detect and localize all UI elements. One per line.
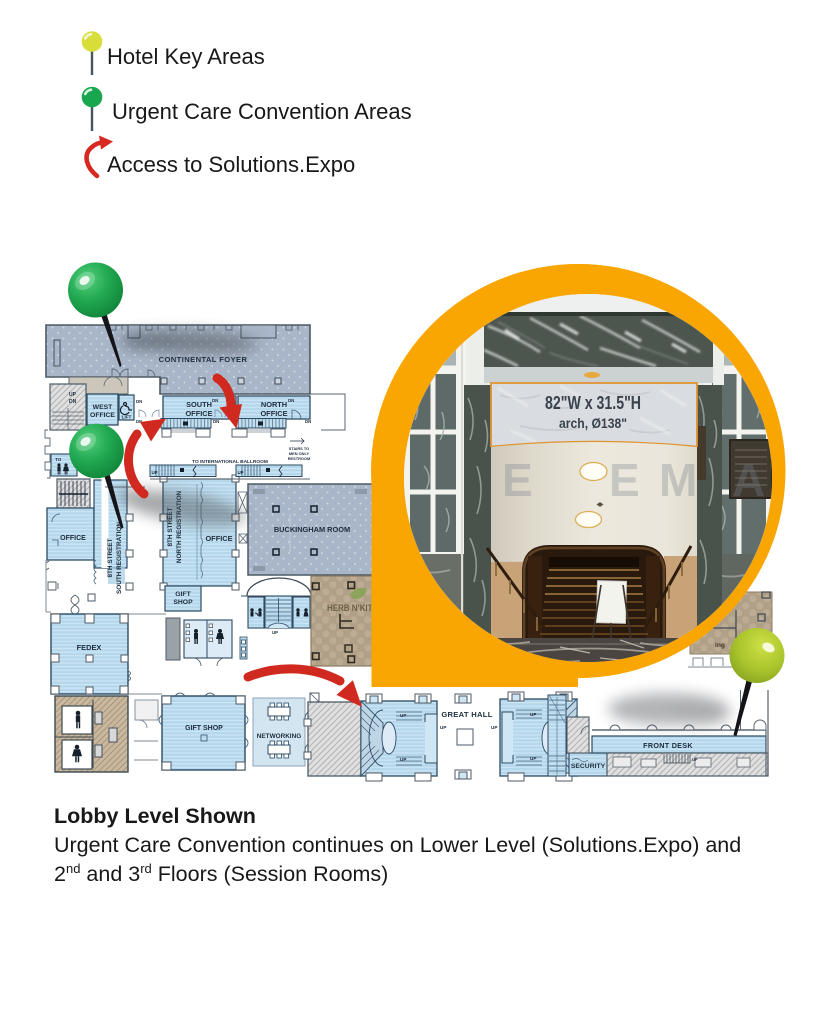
svg-text:UP: UP [440,725,446,730]
svg-text:DN: DN [288,398,294,403]
svg-text:CONTINENTAL FOYER: CONTINENTAL FOYER [159,355,248,364]
svg-text:UP: UP [238,470,244,475]
svg-text:NETWORKING: NETWORKING [257,733,301,740]
svg-text:GREAT HALL: GREAT HALL [441,710,492,719]
svg-text:OFFICE: OFFICE [260,409,287,418]
svg-text:BUCKINGHAM ROOM: BUCKINGHAM ROOM [274,525,350,534]
svg-text:DN: DN [305,419,311,424]
svg-text:8TH STREET: 8TH STREET [107,538,114,577]
svg-text:DN: DN [69,399,77,405]
svg-text:UP: UP [400,713,406,718]
svg-text:UP: UP [530,756,536,761]
svg-text:OFFICE: OFFICE [185,409,212,418]
svg-text:E: E [502,454,533,506]
svg-text:TO INTERNATIONAL BALLROOM: TO INTERNATIONAL BALLROOM [192,459,268,465]
svg-text:ing: ing [715,642,725,649]
svg-text:82"W x 31.5"H: 82"W x 31.5"H [545,393,641,413]
svg-text:UP: UP [69,392,77,398]
svg-text:DN: DN [136,399,142,404]
svg-text:OFFICE: OFFICE [205,534,232,543]
svg-text:A: A [732,454,765,506]
svg-text:arch, Ø138": arch, Ø138" [559,415,627,431]
svg-text:FRONT DESK: FRONT DESK [643,741,693,750]
svg-text:UP: UP [400,757,406,762]
svg-text:M: M [659,454,697,506]
svg-text:Hotel Key Areas: Hotel Key Areas [107,44,265,69]
svg-text:UP: UP [152,470,158,475]
svg-text:Urgent Care Convention continu: Urgent Care Convention continues on Lowe… [54,833,741,857]
svg-text:DN: DN [212,398,218,403]
svg-text:WEST: WEST [93,404,113,411]
svg-text:SECURITY: SECURITY [571,763,606,770]
svg-text:RESTROOM: RESTROOM [288,456,310,461]
svg-text:2nd and 3rd Floors (Session Ro: 2nd and 3rd Floors (Session Rooms) [54,861,388,886]
svg-text:Access to Solutions.Expo: Access to Solutions.Expo [107,152,355,177]
svg-text:UP: UP [272,630,278,635]
svg-text:NORTH: NORTH [261,400,287,409]
svg-text:FEDEX: FEDEX [77,643,102,652]
svg-text:DN: DN [213,419,219,424]
svg-text:SOUTH: SOUTH [186,400,212,409]
svg-text:E: E [609,454,640,506]
svg-text:UP: UP [530,712,536,717]
svg-text:LIFT: LIFT [122,415,132,420]
svg-text:OFFICE: OFFICE [60,535,86,542]
svg-text:SOUTH REGISTRATION: SOUTH REGISTRATION [116,522,123,594]
svg-text:TO: TO [55,457,62,462]
svg-text:OFFICE: OFFICE [90,412,115,419]
svg-text:GIFT: GIFT [175,591,191,598]
svg-text:UP: UP [692,757,698,762]
svg-text:UP: UP [491,725,497,730]
svg-text:Urgent Care Convention Areas: Urgent Care Convention Areas [112,99,412,124]
svg-text:GIFT SHOP: GIFT SHOP [185,725,223,732]
svg-text:Lobby Level Shown: Lobby Level Shown [54,804,256,828]
svg-text:SHOP: SHOP [173,599,193,606]
